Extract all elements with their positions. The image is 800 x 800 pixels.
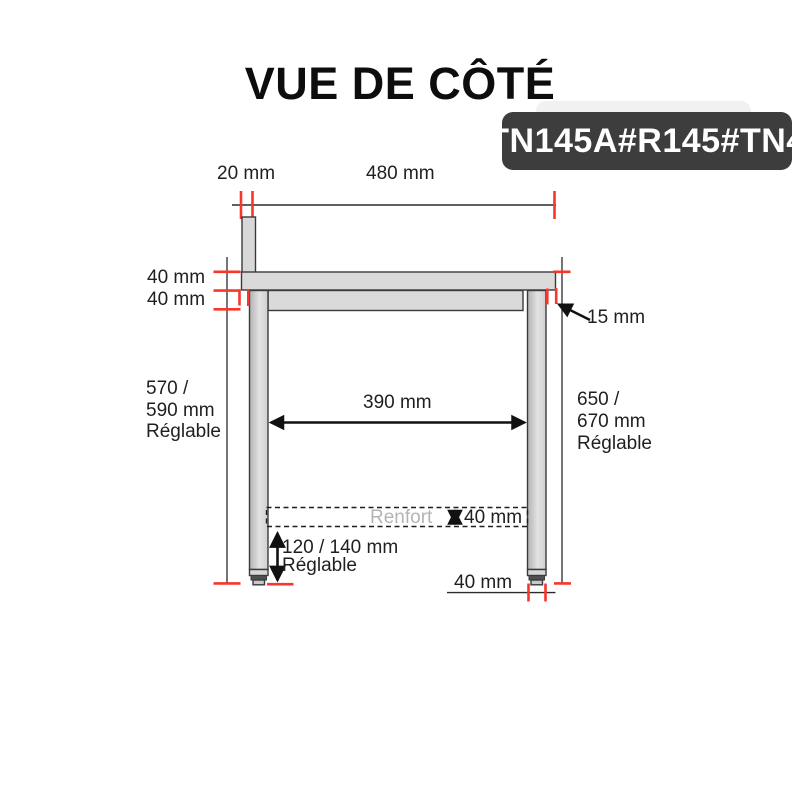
upstand-shape <box>242 217 256 273</box>
renfort-label: Renfort <box>370 508 432 528</box>
left-height-line2: 590 mm <box>146 400 221 422</box>
left-leg-shape <box>250 291 269 570</box>
dim-label-left-height: 570 / 590 mm Réglable <box>146 378 221 443</box>
dim-label-foot-height: 120 / 140 mm Réglable <box>282 539 398 575</box>
dim-label-right-height: 650 / 670 mm Réglable <box>577 389 652 455</box>
rail-shape <box>268 291 523 311</box>
tabletop-shape <box>242 272 556 290</box>
right-leg-shape <box>528 291 547 570</box>
left-height-line3: Réglable <box>146 421 221 443</box>
right-height-line2: 670 mm <box>577 411 652 433</box>
right-height-line3: Réglable <box>577 433 652 455</box>
dim-label-rail-thickness: 40 mm <box>147 290 205 310</box>
product-code-badge: TN145A#R145#TN4 <box>502 112 792 170</box>
product-code-text: TN145A#R145#TN4 <box>488 122 800 161</box>
overhang-arrow <box>559 305 590 321</box>
right-height-line1: 650 / <box>577 389 652 411</box>
dim-label-leg-width: 40 mm <box>454 573 512 593</box>
left-foot-shape <box>250 570 269 585</box>
dim-label-top-thickness: 40 mm <box>147 268 205 288</box>
foot-height-line2: Réglable <box>282 557 398 575</box>
right-foot-shape <box>528 570 547 585</box>
left-height-line1: 570 / <box>146 378 221 400</box>
dim-label-overhang: 15 mm <box>587 308 645 328</box>
dim-label-renfort-thickness: 40 mm <box>464 508 522 528</box>
dim-label-inner-width: 390 mm <box>363 393 432 413</box>
dim-label-upstand-width: 20 mm <box>217 164 275 184</box>
dim-label-top-width: 480 mm <box>366 164 435 184</box>
